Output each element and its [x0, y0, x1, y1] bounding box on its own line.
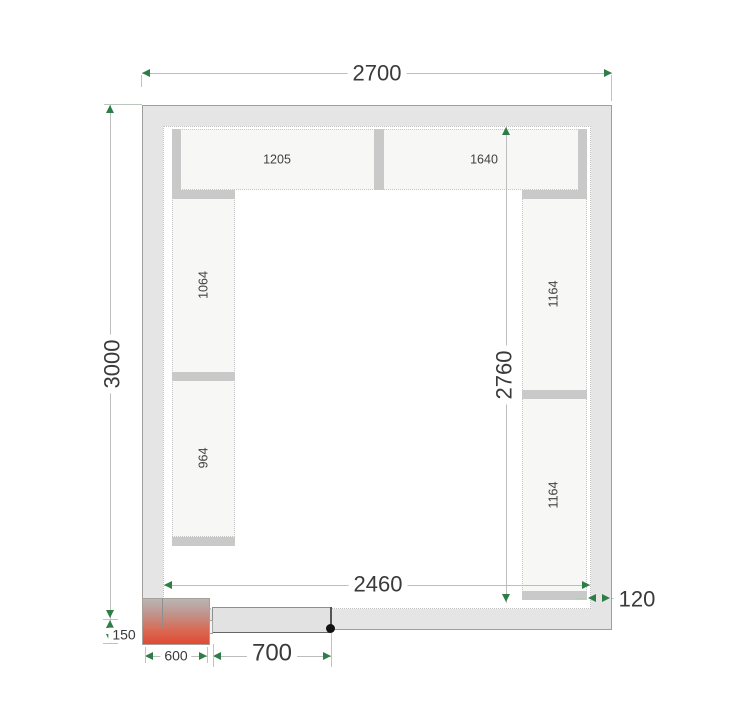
dim-arrow-left: [588, 594, 596, 602]
dim-arrow-left: [142, 69, 150, 77]
dim-arrow-down: [502, 594, 510, 602]
label-shelf-top-left: 1205: [263, 153, 291, 166]
extension-line: [103, 619, 118, 620]
dim-arrow-right: [602, 594, 610, 602]
label-wall-thickness: 120: [614, 587, 661, 610]
extension-line: [576, 598, 584, 599]
label-outer-height: 3000: [100, 335, 123, 394]
extension-line: [104, 104, 142, 105]
extension-line: [141, 75, 142, 87]
shelf-cap-left-top: [172, 190, 235, 199]
shelf-divider-top-center: [374, 129, 384, 190]
dim-arrow-left: [164, 581, 172, 589]
label-inner-height: 2760: [492, 346, 515, 405]
door-hinge-dot: [326, 624, 335, 633]
dim-arrow-left: [213, 652, 221, 660]
label-inner-width: 2460: [349, 572, 408, 595]
label-outer-width: 2700: [348, 61, 407, 84]
label-shelf-left-upper: 1064: [197, 271, 210, 299]
shelf-endcap-top-right: [578, 129, 587, 190]
wall-corner-overlay: [142, 598, 163, 628]
dim-arrow-left: [145, 652, 153, 660]
extension-line: [213, 644, 214, 667]
extension-line: [145, 647, 146, 663]
shelf-divider-left: [172, 372, 235, 381]
extension-line: [611, 75, 612, 101]
label-unit-width: 600: [160, 649, 191, 664]
label-shelf-left-lower: 964: [197, 448, 210, 469]
dim-arrow-up: [106, 105, 114, 113]
label-door-width: 700: [247, 640, 297, 665]
dim-arrow-right: [323, 652, 331, 660]
shelf-cap-left-bottom: [172, 537, 235, 546]
extension-line: [331, 633, 332, 667]
floor-plan-canvas: 2700 3000 2460 2760 120 700 600 150 1205…: [0, 0, 754, 727]
label-shelf-right-lower: 1164: [547, 482, 560, 509]
shelf-divider-right: [522, 390, 587, 399]
dim-arrow-up: [502, 127, 510, 135]
door-leaf: [212, 607, 331, 633]
shelf-left-column: [172, 198, 235, 537]
label-unit-protrusion: 150: [108, 628, 139, 643]
extension-line: [207, 647, 208, 663]
label-shelf-right-upper: 1164: [547, 281, 560, 308]
shelf-cap-right-top: [522, 190, 587, 199]
dim-arrow-right: [199, 652, 207, 660]
extension-line: [103, 643, 118, 644]
dim-arrow-right: [582, 581, 590, 589]
shelf-endcap-top-left: [172, 129, 181, 190]
dim-arrow-down: [106, 610, 114, 618]
label-shelf-top-right: 1640: [470, 153, 498, 166]
